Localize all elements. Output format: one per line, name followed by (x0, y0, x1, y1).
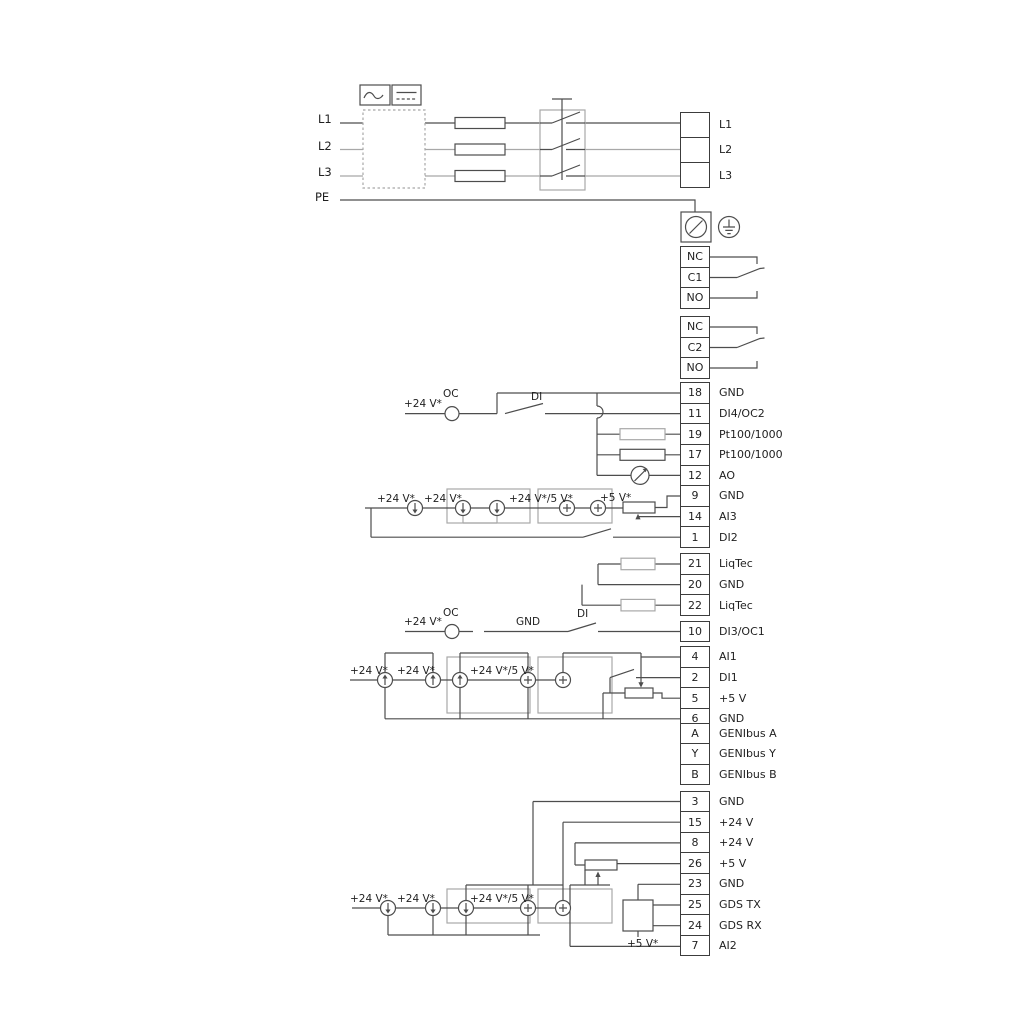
terminal-number: 24 (680, 914, 710, 936)
label-24v: +24 V* (404, 616, 442, 628)
terminal-block-di3: 10DI3/OC1 (680, 621, 765, 643)
terminal-row: 17Pt100/1000 (680, 444, 783, 466)
label-24v-5v: +24 V*/5 V* (470, 893, 534, 905)
terminal-row: 4AI1 (680, 646, 746, 668)
di4-pt100-ao-circuit (405, 393, 680, 484)
terminal-label: Pt100/1000 (719, 448, 783, 461)
terminal-row: 11DI4/OC2 (680, 403, 783, 425)
terminal-label: GND (719, 877, 744, 890)
ai1-di1-circuit (350, 653, 680, 719)
terminal-cell: NC (680, 246, 710, 268)
power-input-label: L3 (318, 165, 332, 179)
terminal-number: 17 (680, 444, 710, 466)
relay-contacts (710, 257, 765, 368)
liqtec-sensor-icon (621, 599, 655, 611)
terminal-cell: C2 (680, 337, 710, 359)
terminal-label: +24 V (719, 816, 753, 829)
terminal-row: 8+24 V (680, 832, 762, 854)
label-24v: +24 V* (397, 893, 435, 905)
label-24v: +24 V* (350, 893, 388, 905)
terminal-row: 15+24 V (680, 811, 762, 833)
terminal-number: 10 (680, 621, 710, 643)
terminal-row: NO (680, 287, 710, 309)
potentiometer-wiper-arrow (638, 682, 643, 687)
terminal-number: 21 (680, 553, 710, 575)
terminal-label: +24 V (719, 836, 753, 849)
terminal-row: 3GND (680, 791, 762, 813)
terminal-label: GND (719, 489, 744, 502)
earth-icon (719, 217, 740, 238)
terminal-row: YGENIbus Y (680, 743, 777, 765)
label-di: DI (531, 391, 542, 403)
label-24v: +24 V* (350, 665, 388, 677)
terminal-label: GND (719, 578, 744, 591)
terminal-number: 9 (680, 485, 710, 507)
terminal-row: L3 (680, 162, 732, 188)
terminal-row: AGENIbus A (680, 723, 777, 745)
label-oc: OC (443, 607, 459, 619)
di3-circuit (405, 623, 680, 639)
terminal-number: 7 (680, 935, 710, 957)
terminal-block-io-bottom: 3GND 15+24 V 8+24 V 26+5 V 23GND 25GDS T… (680, 791, 762, 957)
terminal-block-io-top: 18GND 11DI4/OC2 19Pt100/1000 17Pt100/100… (680, 382, 783, 548)
terminal-row: 5+5 V (680, 687, 746, 709)
terminal-label: L1 (719, 118, 732, 131)
terminal-number: 2 (680, 667, 710, 689)
potentiometer-icon (585, 860, 617, 870)
ground-terminal-icon (681, 212, 711, 242)
liqtec-sensor-icon (621, 558, 655, 570)
terminal-row: BGENIbus B (680, 764, 777, 786)
terminal-block-io-mid: 4AI1 2DI1 5+5 V 6GND (680, 646, 746, 729)
rcd-dashed-box (363, 110, 425, 188)
terminal-label: L3 (719, 169, 732, 182)
terminal-number: 3 (680, 791, 710, 813)
terminal-label: GDS RX (719, 919, 762, 932)
terminal-row: 9GND (680, 485, 783, 507)
terminal-label: DI3/OC1 (719, 625, 765, 638)
terminal-cell: NO (680, 357, 710, 379)
dc-symbol-icon (392, 85, 421, 105)
terminal-row: L2 (680, 137, 732, 163)
terminal-row: 25GDS TX (680, 894, 762, 916)
terminal-label: +5 V (719, 857, 746, 870)
terminal-number: 20 (680, 574, 710, 596)
terminal-number: 12 (680, 465, 710, 487)
terminal-label: GENIbus Y (719, 747, 776, 760)
terminal-label: +5 V (719, 692, 746, 705)
terminal-block-relay1: NC C1 NO (680, 246, 710, 309)
terminal-label: Pt100/1000 (719, 428, 783, 441)
open-collector-icon (445, 407, 459, 421)
terminal-block-relay2: NC C2 NO (680, 316, 710, 379)
voltage-source-plus-icon (556, 673, 571, 688)
liqtec-circuit (582, 558, 680, 611)
terminal-row: 2DI1 (680, 667, 746, 689)
terminal-row: 24GDS RX (680, 914, 762, 936)
label-di: DI (577, 608, 588, 620)
terminal-number: 26 (680, 852, 710, 874)
terminal-cell: NO (680, 287, 710, 309)
power-input-label: PE (315, 190, 329, 204)
terminal-row: C1 (680, 267, 710, 289)
terminal-label: GDS TX (719, 898, 761, 911)
voltage-source-plus-icon (556, 901, 571, 916)
terminal-row: 21LiqTec (680, 553, 753, 575)
terminal-label: DI4/OC2 (719, 407, 765, 420)
ac-symbol-icon (360, 85, 390, 105)
terminal-block-power: L1 L2 L3 (680, 112, 732, 189)
terminal-label: AI2 (719, 939, 737, 952)
terminal-number: 23 (680, 873, 710, 895)
analog-output-meter-icon (631, 466, 649, 484)
current-source-down-icon (490, 501, 505, 516)
terminal-number: Y (680, 743, 710, 765)
label-24v: +24 V* (404, 398, 442, 410)
terminal-number: 22 (680, 594, 710, 616)
terminal-number: 8 (680, 832, 710, 854)
terminal-row: 19Pt100/1000 (680, 423, 783, 445)
terminal-number: 11 (680, 403, 710, 425)
main-switch-icon (540, 99, 585, 190)
label-24v-5v: +24 V*/5 V* (470, 665, 534, 677)
power-input-label: L1 (318, 112, 332, 126)
gds-module-icon (623, 900, 653, 931)
terminal-row: 12AO (680, 465, 783, 487)
terminal-number: 14 (680, 506, 710, 528)
terminal-row: 20GND (680, 574, 753, 596)
terminal-row: NC (680, 316, 710, 338)
label-24v: +24 V* (397, 665, 435, 677)
potentiometer-icon (625, 688, 653, 698)
terminal-number: 15 (680, 811, 710, 833)
terminal-block-liqtec: 21LiqTec 20GND 22LiqTec (680, 553, 753, 616)
terminal-label: DI1 (719, 671, 738, 684)
terminal-row: 14AI3 (680, 506, 783, 528)
terminal-label: GND (719, 386, 744, 399)
current-source-up-icon (453, 673, 468, 688)
terminal-row: L1 (680, 112, 732, 138)
terminal-number: 18 (680, 382, 710, 404)
ground-symbols (681, 212, 740, 242)
terminal-row: 22LiqTec (680, 594, 753, 616)
terminal-row: 26+5 V (680, 852, 762, 874)
terminal-row: NO (680, 357, 710, 379)
terminal-number: 19 (680, 423, 710, 445)
terminal-row: C2 (680, 337, 710, 359)
terminal-cell: C1 (680, 267, 710, 289)
label-5v: +5 V* (627, 938, 658, 950)
label-24v: +24 V* (377, 493, 415, 505)
terminal-cell (680, 162, 710, 188)
terminal-label: AI3 (719, 510, 737, 523)
wiring-lines (0, 0, 1024, 1024)
ai2-gds-circuit (352, 802, 680, 947)
terminal-row: NC (680, 246, 710, 268)
terminal-label: LiqTec (719, 557, 753, 570)
power-circuit (340, 85, 695, 212)
terminal-label: L2 (719, 143, 732, 156)
terminal-label: GENIbus B (719, 768, 777, 781)
terminal-label: LiqTec (719, 599, 753, 612)
terminal-number: 1 (680, 526, 710, 548)
terminal-cell: NC (680, 316, 710, 338)
option-box (538, 657, 612, 713)
power-input-label: L2 (318, 139, 332, 153)
terminal-row: 23GND (680, 873, 762, 895)
open-collector-icon (445, 625, 459, 639)
terminal-label: GND (719, 795, 744, 808)
fuse-icons (455, 118, 505, 182)
option-box (538, 889, 612, 923)
label-oc: OC (443, 388, 459, 400)
wiring-diagram: L1 L2 L3 PE L1 L2 L3 NC C1 NO NC C2 NO 1… (0, 0, 1024, 1024)
label-24v: +24 V* (424, 493, 462, 505)
pt100-sensor-icon (620, 449, 665, 460)
terminal-block-genibus: AGENIbus A YGENIbus Y BGENIbus B (680, 723, 777, 786)
terminal-cell (680, 112, 710, 138)
terminal-label: GENIbus A (719, 727, 777, 740)
label-gnd: GND (516, 616, 540, 628)
terminal-number: A (680, 723, 710, 745)
terminal-number: B (680, 764, 710, 786)
terminal-row: 10DI3/OC1 (680, 621, 765, 643)
terminal-cell (680, 137, 710, 163)
label-24v-5v: +24 V*/5 V* (509, 493, 573, 505)
terminal-row: 1DI2 (680, 526, 783, 548)
terminal-number: 4 (680, 646, 710, 668)
terminal-row: 7AI2 (680, 935, 762, 957)
terminal-label: AO (719, 469, 735, 482)
terminal-label: AI1 (719, 650, 737, 663)
potentiometer-wiper-arrow (595, 872, 600, 878)
terminal-row: 18GND (680, 382, 783, 404)
pt100-sensor-icon (620, 429, 665, 440)
label-5v: +5 V* (600, 492, 631, 504)
terminal-number: 25 (680, 894, 710, 916)
terminal-label: DI2 (719, 531, 738, 544)
terminal-number: 5 (680, 687, 710, 709)
